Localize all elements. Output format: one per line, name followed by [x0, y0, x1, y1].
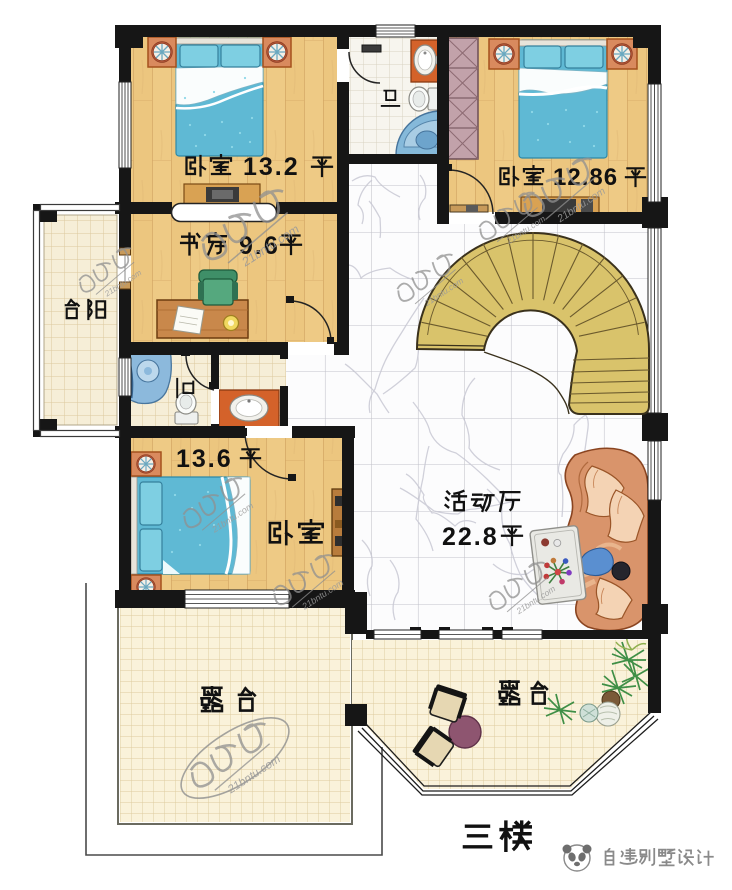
svg-text:12.86: 12.86	[553, 164, 618, 191]
svg-text:13.6: 13.6	[176, 445, 233, 473]
svg-text:13.2: 13.2	[243, 153, 300, 181]
svg-text:22.8: 22.8	[442, 523, 499, 551]
